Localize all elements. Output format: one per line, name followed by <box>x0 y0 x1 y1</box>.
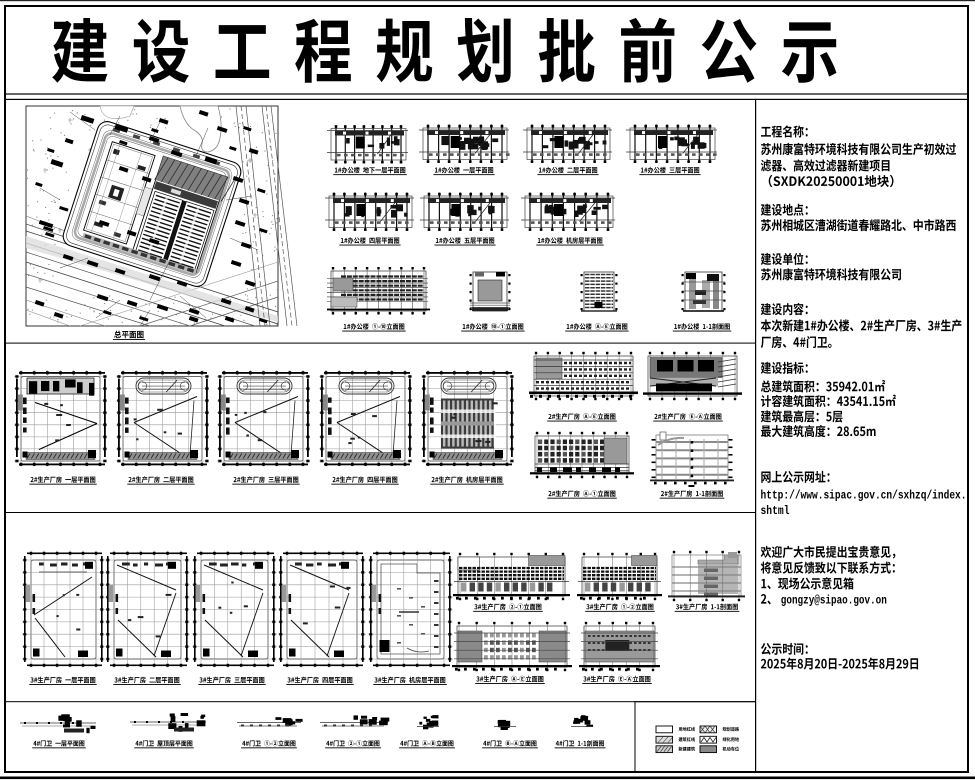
svg-text:gongzy@sipao.gov.on: gongzy@sipao.gov.on <box>781 593 887 607</box>
svg-text:shtml: shtml <box>761 504 790 518</box>
svg-text:http://www.sipac.gov.cn/sxhzq/: http://www.sipac.gov.cn/sxhzq/index. <box>761 488 967 502</box>
